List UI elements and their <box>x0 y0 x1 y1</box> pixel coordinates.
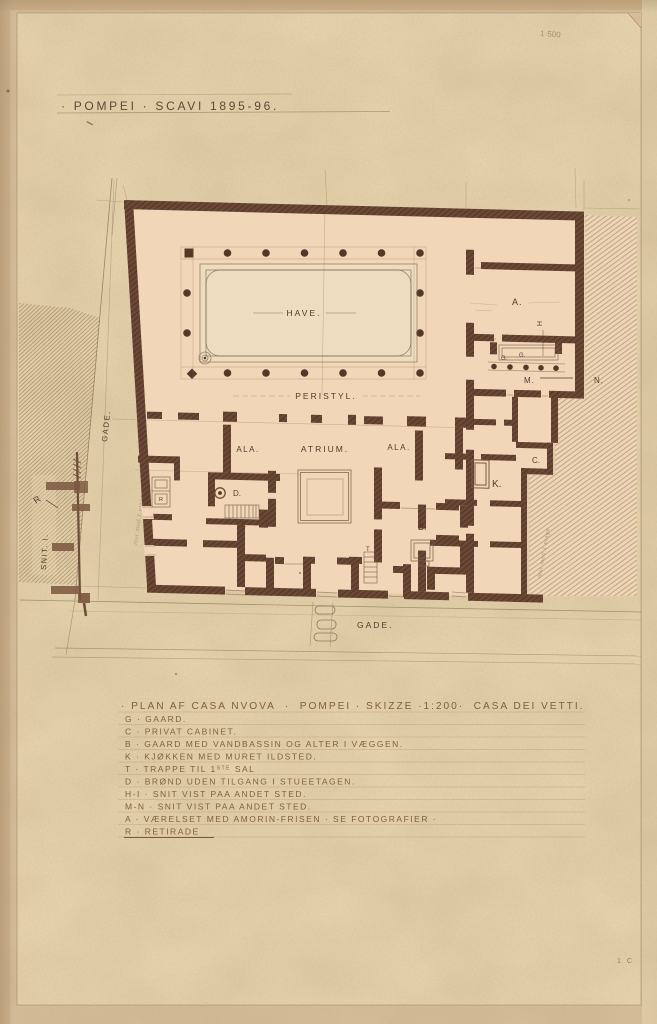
svg-text:C · PRIVAT CABINET.: C · PRIVAT CABINET. <box>125 727 237 737</box>
svg-text:B.: B. <box>418 522 427 532</box>
svg-text:G.: G. <box>519 353 526 359</box>
svg-text:HAVE.: HAVE. <box>287 308 322 318</box>
svg-text:M.: M. <box>524 376 535 385</box>
svg-text:T.: T. <box>240 520 246 529</box>
svg-text:C.: C. <box>532 456 540 465</box>
svg-text:GADE.: GADE. <box>357 620 393 630</box>
svg-text:1·500: 1·500 <box>540 29 562 39</box>
svg-text:T · TRAPPE TIL 1STE SAL: T · TRAPPE TIL 1STE SAL <box>125 764 255 774</box>
svg-text:K.: K. <box>492 479 501 490</box>
svg-text:A · VÆRELSET MED AMORIN-FRISEN: A · VÆRELSET MED AMORIN-FRISEN · SE FOTO… <box>125 814 437 824</box>
svg-text:D · BRØND UDEN TILGANG I STUEE: D · BRØND UDEN TILGANG I STUEETAGEN. <box>125 777 356 787</box>
svg-text:· POMPEI · SCAVI 1895-96.: · POMPEI · SCAVI 1895-96. <box>61 99 279 113</box>
svg-text:B · GAARD MED VANDBASSIN OG AL: B · GAARD MED VANDBASSIN OG ALTER I VÆGG… <box>125 739 404 749</box>
svg-text:H: H <box>535 321 542 326</box>
svg-text:M-N · SNIT VIST PAA ANDET STED: M-N · SNIT VIST PAA ANDET STED. <box>125 802 312 812</box>
svg-text:ATRIUM.: ATRIUM. <box>301 444 349 454</box>
svg-text:ALA.: ALA. <box>387 443 410 452</box>
svg-text:D.: D. <box>233 489 241 498</box>
svg-text:N.: N. <box>594 376 604 385</box>
svg-text:1 C: 1 C <box>617 958 634 965</box>
svg-text:H-I · SNIT VIST PAA ANDET STED: H-I · SNIT VIST PAA ANDET STED. <box>125 789 307 799</box>
svg-text:ALA.: ALA. <box>236 445 259 454</box>
svg-text:K · KJØKKEN MED MURET ILDSTED.: K · KJØKKEN MED MURET ILDSTED. <box>125 752 317 762</box>
svg-text:R: R <box>159 497 163 503</box>
svg-text:T: T <box>366 547 370 553</box>
svg-text:· PLAN AF CASA NVOVA · POMPE: · PLAN AF CASA NVOVA · POMPEI · SKIZZE ·… <box>121 701 584 712</box>
svg-text:SNIT. I.: SNIT. I. <box>39 533 50 570</box>
svg-text:R · RETIRADE: R · RETIRADE <box>125 827 200 837</box>
svg-text:A.: A. <box>512 297 523 307</box>
svg-text:G.: G. <box>501 356 508 362</box>
svg-text:PERISTYL.: PERISTYL. <box>295 391 356 401</box>
svg-text:G · GAARD.: G · GAARD. <box>125 714 187 724</box>
